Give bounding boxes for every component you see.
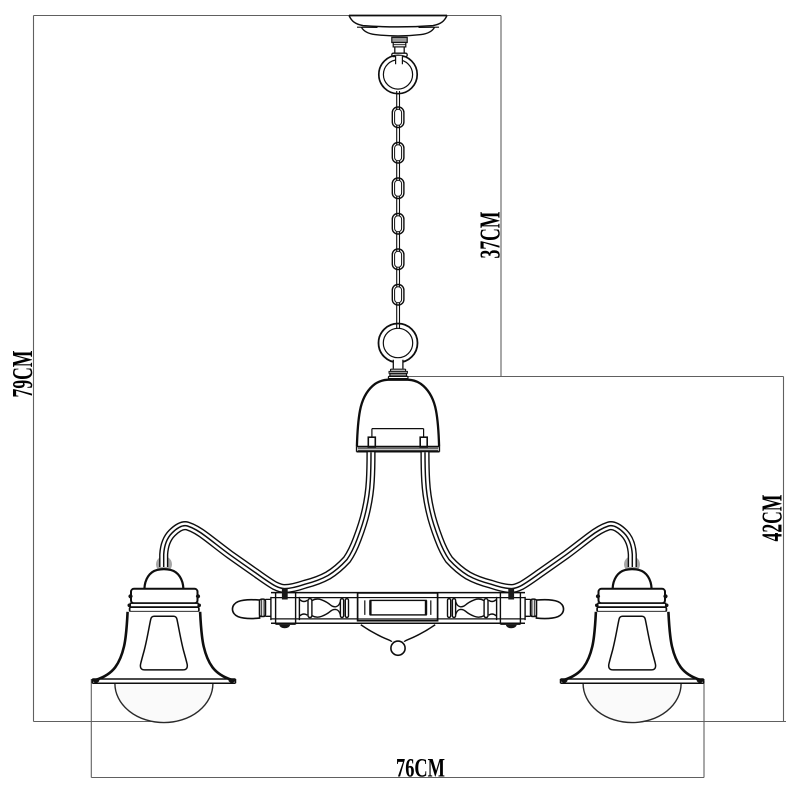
svg-text:42CM: 42CM [758,495,789,542]
svg-text:76CM: 76CM [396,754,445,783]
svg-text:37CM: 37CM [476,212,507,259]
svg-text:79CM: 79CM [8,351,39,398]
